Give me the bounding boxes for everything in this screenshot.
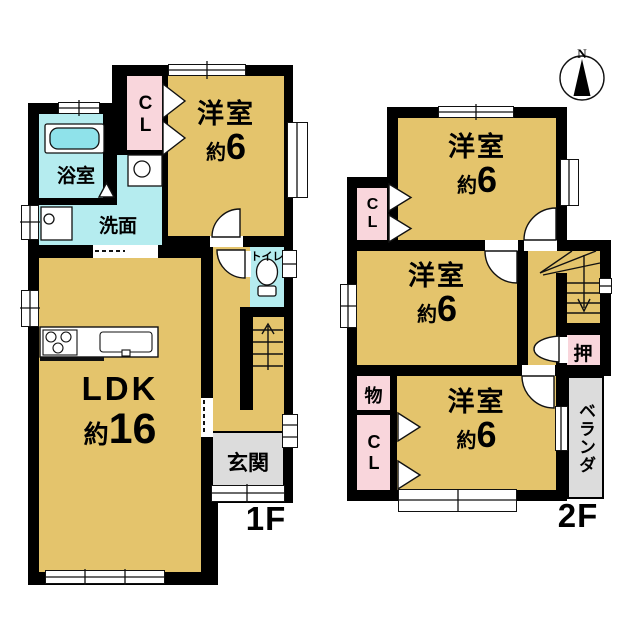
opening-western2f-south-door bbox=[522, 365, 555, 376]
opening-western2f-middle-door bbox=[485, 240, 518, 251]
opening-ldk-corridor bbox=[201, 398, 213, 437]
label-western-2f-middle: 洋室 約6 bbox=[357, 262, 517, 328]
floorplan: N 洋室 約6 CL 浴室 洗面 トイレ LDK 約16 玄関 1F 洋室 約6… bbox=[0, 0, 640, 640]
compass: N bbox=[560, 46, 604, 100]
label-bath: 浴室 bbox=[40, 161, 112, 188]
wall-1f-stairs-top bbox=[240, 307, 284, 317]
label-closet-2f-north: CL bbox=[357, 191, 387, 237]
label-floor-2f: 2F bbox=[548, 497, 608, 535]
label-closet-2f-south: CL bbox=[357, 420, 390, 486]
wall-1f-stairs-left bbox=[240, 317, 253, 410]
opening-washroom-ldk bbox=[93, 245, 158, 258]
compass-north-label: N bbox=[577, 46, 587, 61]
label-toilet: トイレ bbox=[247, 248, 287, 264]
opening-western2f-north-door bbox=[524, 240, 557, 251]
label-oshiire: 押 bbox=[566, 339, 600, 366]
opening-western1f-door bbox=[210, 236, 243, 247]
window-2f-south-veranda bbox=[555, 406, 568, 451]
stairs-2f-winder-area bbox=[556, 251, 600, 273]
label-closet-1f: CL bbox=[128, 82, 162, 148]
window-2f-stairs-right bbox=[599, 278, 612, 294]
label-washroom: 洗面 bbox=[78, 211, 158, 238]
window-bath-top bbox=[58, 102, 100, 114]
label-storage: 物 bbox=[357, 382, 390, 408]
window-2f-south-bottom bbox=[398, 489, 517, 512]
window-ldk-left bbox=[21, 290, 39, 327]
window-washroom-left bbox=[21, 205, 39, 240]
label-veranda: ベランダ bbox=[569, 381, 602, 494]
window-ldk-bottom bbox=[45, 570, 165, 584]
window-entrance-right bbox=[282, 414, 298, 448]
window-western1f-right-bay bbox=[287, 122, 308, 198]
corridor-2f bbox=[528, 251, 556, 365]
window-western1f-top bbox=[168, 64, 246, 76]
window-2f-north-right-bay bbox=[560, 159, 579, 206]
label-western-1f: 洋室 約6 bbox=[168, 100, 284, 166]
label-entrance: 玄関 bbox=[213, 447, 283, 477]
label-western-2f-north: 洋室 約6 bbox=[398, 133, 556, 199]
window-2f-middle-left bbox=[340, 284, 357, 328]
label-ldk: LDK 約16 bbox=[40, 372, 200, 452]
window-2f-north-top bbox=[438, 106, 514, 118]
label-floor-1f: 1F bbox=[236, 500, 296, 538]
label-western-2f-south: 洋室 約6 bbox=[397, 388, 556, 454]
compass-needle bbox=[574, 59, 591, 96]
stairs-2f-run-area bbox=[567, 273, 600, 323]
